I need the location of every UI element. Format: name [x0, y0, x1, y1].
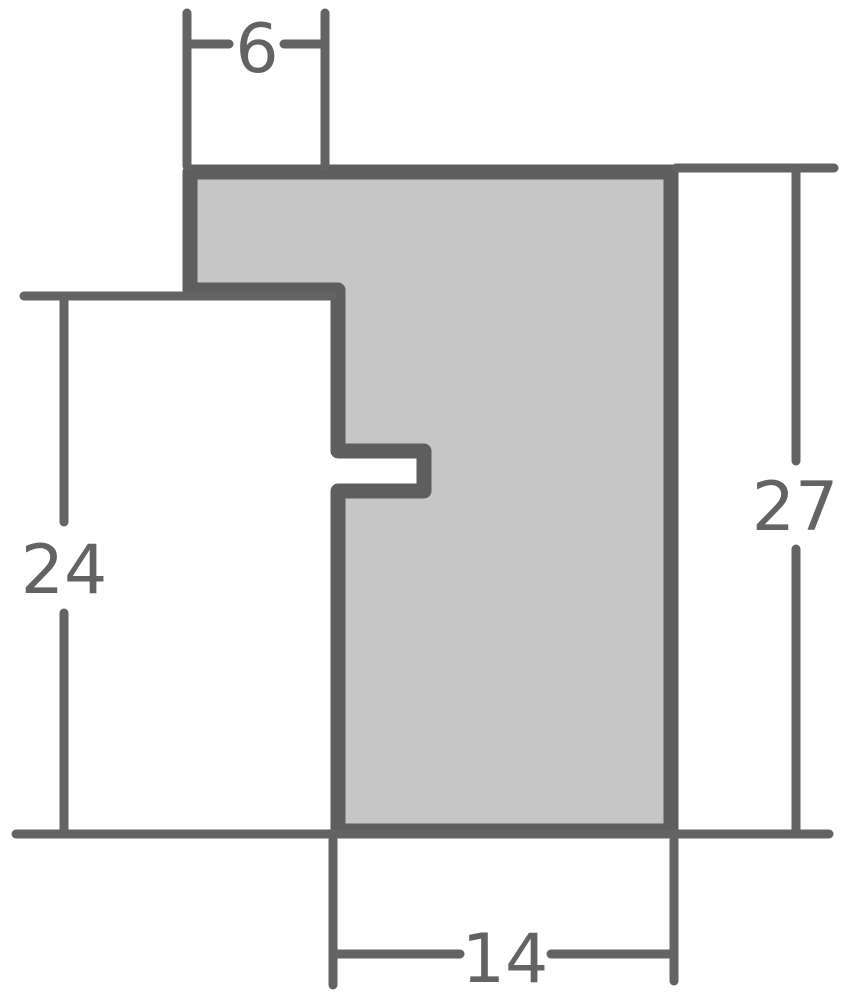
- dimension-label-left-height: 24: [21, 531, 108, 610]
- profile-cross-section: [190, 172, 671, 831]
- dimension-top-width: 6: [187, 10, 325, 166]
- dimension-label-bottom-width: 14: [462, 920, 549, 999]
- profile-outline-path: [190, 172, 671, 831]
- dimension-bottom-width: 14: [333, 840, 674, 999]
- dimension-left-height: 24: [21, 296, 332, 831]
- moulding-profile-drawing: 6 24 27 14: [0, 0, 851, 1004]
- dimension-label-right-height: 27: [752, 468, 839, 547]
- technical-diagram: 6 24 27 14: [0, 0, 851, 1004]
- dimension-label-top-width: 6: [235, 10, 278, 89]
- dimension-right-height: 27: [676, 168, 838, 831]
